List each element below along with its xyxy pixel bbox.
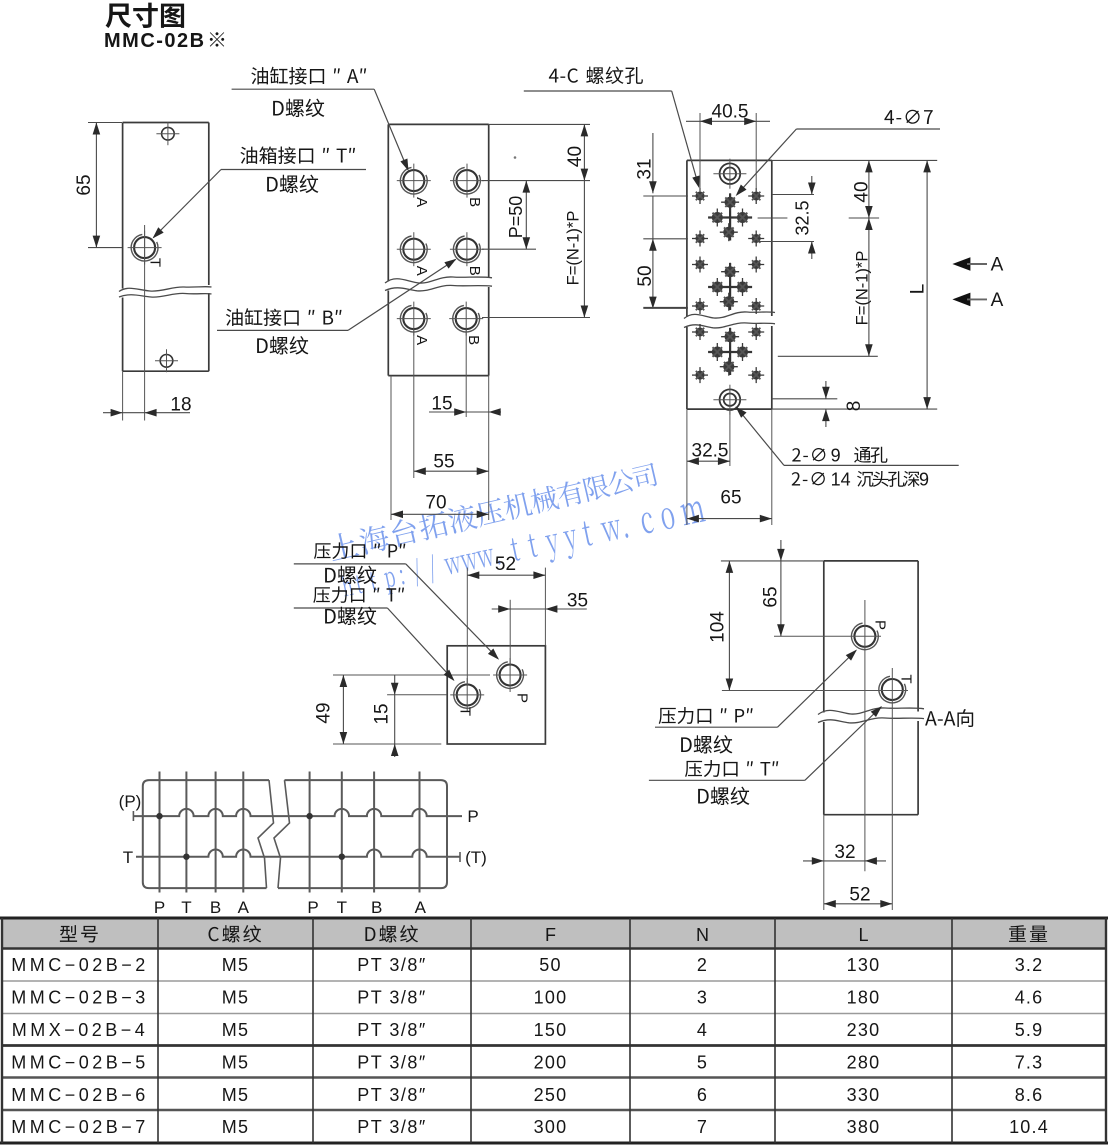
svg-text:7: 7 xyxy=(697,1117,708,1137)
svg-text:5: 5 xyxy=(697,1052,708,1072)
svg-text:6: 6 xyxy=(697,1085,708,1105)
svg-text:250: 250 xyxy=(534,1085,568,1105)
svg-text:130: 130 xyxy=(847,955,881,975)
svg-text:T: T xyxy=(457,707,474,716)
svg-text:7.3: 7.3 xyxy=(1015,1052,1044,1072)
svg-text:2: 2 xyxy=(697,955,708,975)
svg-text:F: F xyxy=(545,925,556,945)
svg-text:P: P xyxy=(467,807,478,826)
svg-text:50: 50 xyxy=(539,955,561,975)
svg-text:P: P xyxy=(307,898,318,917)
svg-text:14: 14 xyxy=(831,470,851,490)
svg-text:A: A xyxy=(238,898,250,917)
svg-text:180: 180 xyxy=(847,988,881,1008)
svg-text:8.6: 8.6 xyxy=(1015,1085,1044,1105)
svg-text:P: P xyxy=(154,898,165,917)
svg-text:M5: M5 xyxy=(222,955,249,975)
svg-text:65: 65 xyxy=(761,586,782,607)
svg-text:330: 330 xyxy=(847,1085,881,1105)
svg-text:PT 3/8″: PT 3/8″ xyxy=(357,955,427,975)
svg-text:PT 3/8″: PT 3/8″ xyxy=(357,988,427,1008)
svg-text:MMX−02B−4: MMX−02B−4 xyxy=(12,1020,149,1040)
svg-text:P=50: P=50 xyxy=(506,196,526,239)
svg-text:100: 100 xyxy=(534,988,568,1008)
svg-text:N: N xyxy=(696,925,709,945)
svg-text:F=(N-1)*P: F=(N-1)*P xyxy=(565,211,583,286)
svg-text:65: 65 xyxy=(720,488,741,509)
svg-text:T: T xyxy=(337,898,347,917)
svg-text:A: A xyxy=(991,255,1004,276)
svg-text:A: A xyxy=(413,266,430,276)
svg-text:8: 8 xyxy=(844,401,865,412)
svg-text:T: T xyxy=(147,258,164,267)
svg-text:32.5: 32.5 xyxy=(692,441,729,462)
svg-text:150: 150 xyxy=(534,1020,568,1040)
svg-text:230: 230 xyxy=(847,1020,881,1040)
svg-text:4: 4 xyxy=(697,1020,708,1040)
svg-text:MMC−02B−7: MMC−02B−7 xyxy=(11,1117,149,1137)
svg-text:B: B xyxy=(466,266,483,276)
svg-text:35: 35 xyxy=(567,591,588,612)
svg-text:5.9: 5.9 xyxy=(1015,1020,1044,1040)
svg-text:F=(N-1)*P: F=(N-1)*P xyxy=(854,251,872,326)
svg-text:50: 50 xyxy=(635,265,656,286)
svg-text:P: P xyxy=(872,620,889,630)
svg-text:MMC-02B: MMC-02B xyxy=(104,30,206,52)
svg-text:M5: M5 xyxy=(222,1020,249,1040)
svg-text:32.5: 32.5 xyxy=(793,200,813,235)
svg-text:B: B xyxy=(371,898,382,917)
svg-text:40.5: 40.5 xyxy=(712,102,749,123)
svg-text:15: 15 xyxy=(372,703,393,724)
svg-text:49: 49 xyxy=(314,702,335,723)
svg-text:L: L xyxy=(908,284,929,295)
svg-text:9: 9 xyxy=(831,446,841,466)
svg-text:15: 15 xyxy=(431,394,452,415)
svg-text:52: 52 xyxy=(849,885,870,906)
svg-text:52: 52 xyxy=(495,554,516,575)
svg-text:40: 40 xyxy=(565,146,586,167)
svg-text:A: A xyxy=(991,290,1004,311)
svg-text:55: 55 xyxy=(433,452,454,473)
svg-text:70: 70 xyxy=(425,493,446,514)
svg-text:32: 32 xyxy=(834,842,855,863)
svg-text:M5: M5 xyxy=(222,1085,249,1105)
svg-text:300: 300 xyxy=(534,1117,568,1137)
svg-text:40: 40 xyxy=(852,181,873,202)
svg-text:380: 380 xyxy=(847,1117,881,1137)
svg-text:M5: M5 xyxy=(222,988,249,1008)
svg-text:B: B xyxy=(466,197,483,207)
svg-text:B: B xyxy=(465,335,482,345)
svg-text:L: L xyxy=(858,925,868,945)
svg-text:3.2: 3.2 xyxy=(1015,955,1044,975)
svg-text:200: 200 xyxy=(534,1052,568,1072)
svg-text:A: A xyxy=(415,898,427,917)
svg-text:PT 3/8″: PT 3/8″ xyxy=(357,1085,427,1105)
svg-text:MMC−02B−2: MMC−02B−2 xyxy=(11,955,149,975)
svg-text:(T): (T) xyxy=(465,848,487,867)
svg-text:A: A xyxy=(413,197,430,207)
svg-text:PT 3/8″: PT 3/8″ xyxy=(357,1117,427,1137)
svg-text:PT 3/8″: PT 3/8″ xyxy=(357,1020,427,1040)
svg-text:B: B xyxy=(210,898,221,917)
svg-text:A: A xyxy=(413,335,430,345)
svg-text:31: 31 xyxy=(635,158,656,179)
svg-text:M5: M5 xyxy=(222,1117,249,1137)
svg-text:T: T xyxy=(181,898,191,917)
svg-text:P: P xyxy=(514,693,531,703)
svg-text:10.4: 10.4 xyxy=(1009,1117,1049,1137)
svg-text:9: 9 xyxy=(919,470,929,490)
svg-text:104: 104 xyxy=(708,611,729,643)
svg-text:MMC−02B−6: MMC−02B−6 xyxy=(11,1085,149,1105)
svg-text:T: T xyxy=(898,674,915,683)
svg-text:280: 280 xyxy=(847,1052,881,1072)
svg-text:MMC−02B−5: MMC−02B−5 xyxy=(11,1052,149,1072)
svg-text:3: 3 xyxy=(697,988,708,1008)
svg-text:PT 3/8″: PT 3/8″ xyxy=(357,1052,427,1072)
svg-text:(P): (P) xyxy=(119,792,142,811)
svg-text:T: T xyxy=(123,848,133,867)
svg-text:4.6: 4.6 xyxy=(1015,988,1044,1008)
svg-text:65: 65 xyxy=(74,174,95,195)
svg-text:M5: M5 xyxy=(222,1052,249,1072)
svg-text:18: 18 xyxy=(170,395,191,416)
svg-text:MMC−02B−3: MMC−02B−3 xyxy=(11,988,149,1008)
